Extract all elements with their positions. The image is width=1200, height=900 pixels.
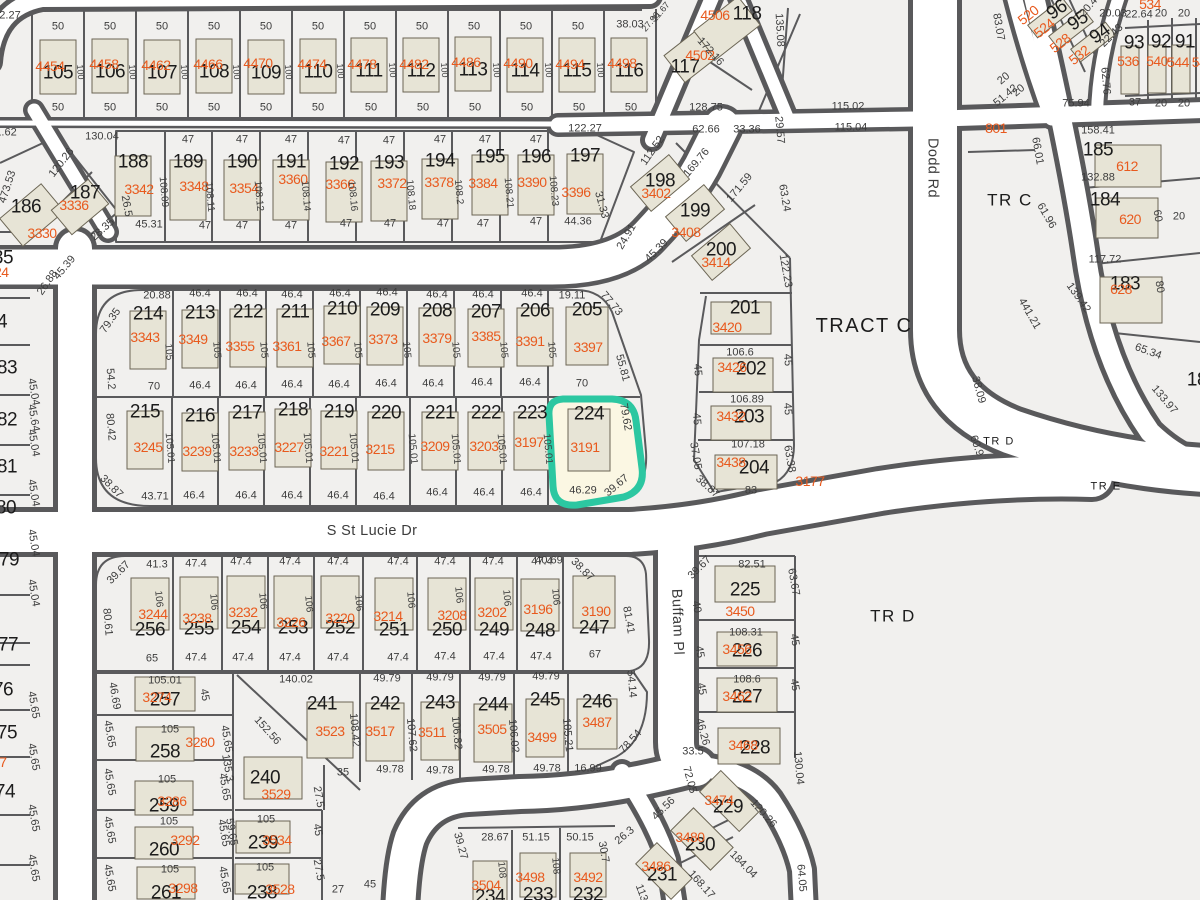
parcel-address-label: 3286 [157, 794, 186, 808]
dimension-label: 46.29 [569, 486, 597, 497]
parcel-address-label: 3298 [168, 881, 197, 895]
dimension-label: 50 [468, 22, 480, 33]
parcel-address-label: 3397 [573, 340, 602, 354]
parcel-number-label[interactable]: 240 [250, 769, 280, 788]
parcel-address-label: 3529 [261, 787, 290, 801]
parcel-number-label[interactable]: 212 [233, 303, 263, 322]
dimension-label: 135.08 [773, 13, 786, 47]
dimension-label: 20 [1178, 9, 1190, 20]
parcel-number-label[interactable]: 213 [185, 304, 215, 323]
dimension-label: 105.01 [209, 432, 222, 463]
parcel-number-label[interactable]: 233 [523, 886, 553, 900]
dimension-label: 47 [479, 135, 491, 146]
dimension-label: 50.15 [566, 833, 594, 844]
dimension-label: 105.01 [255, 432, 268, 463]
tract-label: TR C [987, 192, 1033, 209]
dimension-label: 106.6 [726, 348, 754, 359]
dimension-label: 50 [364, 22, 376, 33]
dimension-label: 50 [52, 103, 64, 114]
dimension-label: 45 [198, 688, 211, 702]
parcel-address-label: 4454 [35, 59, 64, 73]
dimension-label: 47.4 [482, 557, 503, 568]
dimension-label: 26.5 [119, 194, 134, 217]
parcel-number-label[interactable]: 214 [133, 305, 163, 324]
parcel-number-label[interactable]: 208 [422, 302, 452, 321]
parcel-number-label[interactable]: 77 [0, 636, 18, 655]
parcel-number-label[interactable]: 243 [425, 694, 455, 713]
parcel-address-label: 3227 [274, 440, 303, 454]
parcel-number-label[interactable]: 81 [0, 458, 17, 477]
dimension-label: 46.4 [329, 289, 350, 300]
parcel-number-label[interactable]: 82 [0, 411, 17, 430]
dimension-label: 105.01 [495, 433, 508, 464]
dimension-label: 100 [335, 63, 345, 79]
parcel-address-label: 3420 [712, 320, 741, 334]
parcel-number-label[interactable]: 195 [475, 148, 505, 167]
dimension-label: 20.88 [143, 291, 171, 302]
parcel-number-label[interactable]: 232 [573, 886, 603, 900]
dimension-label: 106 [207, 593, 218, 610]
dimension-label: 64.05 [794, 864, 807, 892]
dimension-label: 49.79 [478, 673, 506, 684]
dimension-label: 46.4 [472, 290, 493, 301]
tract-label: TRACT C [816, 316, 913, 336]
parcel-number-label[interactable]: 244 [478, 696, 508, 715]
dimension-label: 47.4 [434, 557, 455, 568]
parcel-number-label[interactable]: 190 [227, 153, 257, 172]
parcel-address-label: 4506 [700, 8, 729, 22]
dimension-label: 108.21 [502, 177, 515, 208]
parcel-number-label[interactable]: 247 [579, 619, 609, 638]
dimension-label: 108.18 [404, 179, 417, 210]
dimension-label: 115.02 [832, 102, 865, 113]
dimension-label: 46.4 [376, 288, 397, 299]
dimension-label: 140.02 [279, 675, 313, 686]
dimension-label: 30.7 [596, 840, 611, 863]
dimension-label: 51.15 [522, 833, 550, 844]
parcel-number-label[interactable]: 192 [329, 155, 359, 174]
dimension-label: 49.79 [426, 673, 454, 684]
dimension-label: 1.62 [0, 128, 17, 139]
parcel-number-label[interactable]: 225 [730, 581, 760, 600]
parcel-address-label: 3239 [182, 444, 211, 458]
parcel-number-label[interactable]: 197 [570, 147, 600, 166]
dimension-label: 46.4 [236, 289, 257, 300]
parcel-number-label[interactable]: 248 [525, 622, 555, 641]
dimension-label: 100 [179, 64, 189, 80]
dimension-label: 50 [520, 22, 532, 33]
parcel-address-label: 3367 [321, 334, 350, 348]
dimension-label: 47 [236, 135, 248, 146]
dimension-label: 46.4 [328, 380, 349, 391]
dimension-label: 105 [304, 341, 315, 358]
parcel-address-label: 3214 [373, 609, 402, 623]
dimension-label: 105.01 [301, 432, 314, 463]
dimension-label: 106 [256, 592, 267, 609]
dimension-label: 46.4 [235, 491, 256, 502]
parcel-address-label: 3379 [422, 331, 451, 345]
dimension-label: 100 [283, 64, 293, 80]
dimension-label: 106 [404, 591, 415, 608]
dimension-label: 49.78 [482, 765, 510, 776]
dimension-label: 47 [338, 136, 350, 147]
dimension-label: 108 [549, 857, 560, 874]
parcel-address-label: 3324 [0, 265, 9, 279]
parcel-address-label: 3391 [515, 334, 544, 348]
dimension-label: 45 [311, 823, 324, 837]
parcel-address-label: 801 [985, 121, 1007, 135]
dimension-label: 107.18 [731, 440, 765, 451]
dimension-label: 100 [75, 64, 85, 80]
dimension-label: 117.72 [1089, 255, 1122, 266]
dimension-label: 49.78 [376, 765, 404, 776]
parcel-number-label[interactable]: 209 [370, 301, 400, 320]
dimension-label: 105.01 [449, 433, 462, 464]
parcel-number-label[interactable]: 188 [118, 153, 148, 172]
dimension-label: 20 [1155, 99, 1167, 110]
dimension-label: 49.78 [533, 764, 561, 775]
dimension-label: 65 [146, 654, 158, 665]
parcel-address-label: 3414 [701, 255, 730, 269]
dimension-label: 75.94 [1062, 99, 1090, 110]
parcel-address-label: 3432 [716, 409, 745, 423]
parcel-address-label: 3292 [170, 833, 199, 847]
parcel-address-label: 536 [1117, 54, 1139, 68]
parcel-address-label: 4478 [347, 57, 376, 71]
parcel-address-label: 3226 [276, 615, 305, 629]
dimension-label: 33.36 [733, 125, 761, 136]
dimension-label: 108.12 [252, 180, 265, 211]
dimension-label: 40 [690, 600, 703, 614]
parcel-address-label: 3528 [265, 882, 294, 896]
dimension-label: 46.4 [426, 290, 447, 301]
parcel-address-label: 3245 [133, 440, 162, 454]
dimension-label: 105 [161, 865, 179, 876]
dimension-label: 27.5 [311, 785, 326, 808]
parcel-address-label: 3402 [641, 186, 670, 200]
dimension-label: 47.4 [530, 652, 551, 663]
parcel-number-label[interactable]: 219 [324, 403, 354, 422]
dimension-label: 108.16 [346, 180, 359, 211]
parcel-address-label: 628 [1110, 282, 1132, 296]
dimension-label: 49.78 [426, 766, 454, 777]
dimension-label: 106 [549, 588, 560, 605]
dimension-label: 27 [332, 885, 344, 896]
parcel-address-label: 3202 [477, 605, 506, 619]
parcel-address-label: 4458 [89, 57, 118, 71]
parcel-address-label: 3426 [717, 360, 746, 374]
parcel-number-label[interactable]: 193 [374, 154, 404, 173]
dimension-label: 46.4 [521, 289, 542, 300]
parcel-number-label[interactable]: 221 [425, 404, 455, 423]
parcel-number-label[interactable]: 245 [530, 691, 560, 710]
parcel-number-label[interactable]: 83 [0, 359, 17, 378]
dimension-label: 40.69 [535, 556, 563, 567]
parcel-number-label[interactable]: 224 [574, 405, 604, 424]
dimension-label: 50 [104, 22, 116, 33]
parcel-address-label: 3343 [130, 330, 159, 344]
dimension-label: 50 [469, 103, 481, 114]
parcel-address-label: 3492 [573, 870, 602, 884]
dimension-label: 105 [449, 341, 460, 358]
dimension-label: 45 [691, 363, 703, 376]
parcel-address-label: 54 [1192, 55, 1200, 69]
parcel-number-label[interactable]: 223 [517, 404, 547, 423]
parcel-number-label[interactable]: 250 [432, 621, 462, 640]
dimension-label: 108.31 [729, 628, 763, 639]
dimension-label: 47.4 [185, 653, 206, 664]
dimension-label: 50 [417, 103, 429, 114]
parcel-number-label[interactable]: 220 [371, 404, 401, 423]
dimension-label: 35 [337, 768, 349, 779]
parcel-number-label[interactable]: 184 [1090, 191, 1120, 210]
parcel-number-label[interactable]: 186 [11, 198, 41, 217]
dimension-label: 47 [199, 221, 211, 232]
dimension-label: 105 [545, 341, 556, 358]
dimension-label: 108.23 [547, 175, 560, 206]
dimension-label: 47.4 [327, 653, 348, 664]
dimension-label: 70 [576, 379, 588, 390]
parcel-address-label: 3215 [365, 442, 394, 456]
dimension-label: 47.4 [185, 559, 206, 570]
parcel-address-label: 3190 [581, 604, 610, 618]
dimension-label: 50 [625, 103, 637, 114]
dimension-label: 100 [439, 62, 449, 78]
parcel-number-label[interactable]: 256 [135, 621, 165, 640]
dimension-label: 130.04 [85, 132, 119, 143]
dimension-label: 50 [260, 103, 272, 114]
dimension-label: 67 [589, 650, 601, 661]
dimension-label: 46.4 [183, 491, 204, 502]
dimension-label: 50 [208, 103, 220, 114]
dimension-label: 47.4 [434, 652, 455, 663]
parcel-address-label: 3203 [469, 439, 498, 453]
parcel-address-label: 3244 [138, 607, 167, 621]
dimension-label: 46.4 [426, 488, 447, 499]
parcel-address-label: 3474 [704, 793, 733, 807]
dimension-label: 46.4 [189, 381, 210, 392]
parcel-address-label: 4490 [503, 56, 532, 70]
dimension-label: 47.4 [279, 653, 300, 664]
parcel-number-label[interactable]: 241 [307, 695, 337, 714]
parcel-address-label: 3504 [471, 878, 500, 892]
dimension-label: 20 [1178, 99, 1190, 110]
parcel-address-label: 3274 [142, 690, 171, 704]
dimension-label: 46.4 [473, 488, 494, 499]
dimension-label: 16.99 [574, 764, 602, 775]
parcel-address-label: 3385 [471, 329, 500, 343]
dimension-label: 45 [788, 678, 801, 692]
parcel-number-label[interactable]: 222 [471, 404, 501, 423]
parcel-address-label: 3408 [671, 225, 700, 239]
parcel-address-label: 3498 [515, 870, 544, 884]
parcel-number-label[interactable]: 242 [370, 695, 400, 714]
dimension-label: 45 [364, 880, 376, 891]
dimension-label: 132.88 [1081, 173, 1115, 184]
dimension-label: 20 [1155, 9, 1167, 20]
parcel-number-label[interactable]: 205 [572, 301, 602, 320]
dimension-label: 50 [208, 22, 220, 33]
dimension-label: 47 [530, 135, 542, 146]
street-name-label: Buffam Pl [669, 589, 686, 656]
dimension-label: 2.27 [0, 11, 21, 22]
parcel-number-label[interactable]: 189 [173, 153, 203, 172]
parcel-address-label: 4486 [451, 55, 480, 69]
dimension-label: 50 [416, 22, 428, 33]
dimension-label: 108.14 [299, 180, 312, 211]
parcel-address-label: 3355 [225, 339, 254, 353]
dimension-label: 105 [160, 817, 178, 828]
dimension-label: 70 [148, 382, 160, 393]
dimension-label: 33.5 [682, 747, 703, 758]
parcel-number-label[interactable]: 75 [0, 724, 17, 743]
parcel-address-label: 4494 [555, 57, 584, 71]
dimension-label: 106.82 [449, 716, 463, 750]
dimension-label: 45 [788, 633, 801, 647]
dimension-label: 105 [161, 725, 179, 736]
dimension-label: 108.2 [452, 179, 464, 205]
dimension-label: 115.04 [835, 123, 868, 134]
dimension-label: 54.2 [104, 368, 117, 390]
dimension-label: 27.5 [311, 858, 326, 881]
dimension-label: 46.4 [375, 379, 396, 390]
dimension-label: 50 [156, 103, 168, 114]
dimension-label: 47 [383, 136, 395, 147]
parcel-number-label[interactable]: 196 [521, 148, 551, 167]
dimension-label: 50 [260, 22, 272, 33]
dimension-label: 105.01 [163, 432, 176, 463]
parcel-address-label: 4470 [243, 56, 272, 70]
dimension-label: 22.64 [1125, 10, 1153, 21]
parcel-address-label: 3197 [514, 435, 543, 449]
dimension-label: 47.4 [230, 557, 251, 568]
dimension-label: 106 [500, 589, 511, 606]
dimension-label: 100 [543, 62, 553, 78]
tract-label: TR D [870, 608, 916, 625]
parcel-address-label: 3499 [527, 730, 556, 744]
parcel-number-label[interactable]: 118 [733, 5, 762, 24]
parcel-number-label[interactable]: 249 [479, 621, 509, 640]
parcel-address-label: 3177 [795, 474, 824, 488]
parcel-number-label[interactable]: 4 [0, 313, 7, 332]
dimension-label: 50 [104, 103, 116, 114]
dimension-label: 80 [1153, 280, 1166, 294]
parcel-address-label: 3233 [229, 444, 258, 458]
dimension-label: 45 [781, 402, 793, 415]
dimension-label: 100 [595, 62, 605, 78]
parcel-number-label[interactable]: 207 [471, 303, 501, 322]
parcel-address-label: 3480 [675, 830, 704, 844]
dimension-label: 28.67 [481, 833, 509, 844]
dimension-label: 46.4 [281, 491, 302, 502]
dimension-label: 50 [312, 22, 324, 33]
parcel-number-label[interactable]: 80 [0, 499, 16, 518]
dimension-label: 105.01 [347, 432, 360, 463]
tract-label: TR E [1090, 482, 1121, 493]
dimension-label: 108.6 [733, 675, 761, 686]
dimension-label: 47 [530, 217, 542, 228]
parcel-address-label: 3208 [437, 608, 466, 622]
dimension-label: 106 [302, 595, 313, 612]
parcel-number-label[interactable]: 206 [520, 302, 550, 321]
dimension-label: 47 [182, 135, 194, 146]
parcel-number-label[interactable]: 18 [1187, 371, 1200, 390]
dimension-label: 46.4 [327, 491, 348, 502]
dimension-label: 106.02 [506, 719, 520, 753]
parcel-number-label[interactable]: 217 [232, 404, 262, 423]
parcel-number-label[interactable]: 246 [582, 693, 612, 712]
dimension-label: 45 [690, 412, 702, 425]
parcel-address-label: 3373 [368, 332, 397, 346]
dimension-label: 50 [365, 103, 377, 114]
parcel-number-label[interactable]: 93 [1124, 34, 1144, 53]
dimension-label: 105.01 [148, 676, 182, 687]
parcel-number-label[interactable]: 176 [0, 681, 13, 700]
parcel-address-label: 3384 [468, 176, 497, 190]
dimension-label: 106 [452, 586, 463, 603]
dimension-label: 47 [340, 219, 352, 230]
parcel-address-label: 3220 [325, 611, 354, 625]
street-name-label: S St Lucie Dr [327, 524, 418, 539]
dimension-label: 46.4 [281, 290, 302, 301]
parcel-address-label: 544 [1167, 55, 1189, 69]
parcel-number-label[interactable]: 254 [231, 619, 261, 638]
parcel-address-label: 3462 [722, 689, 751, 703]
parcel-number-label[interactable]: 74 [0, 783, 15, 802]
dimension-label: 107.62 [404, 718, 418, 752]
dimension-label: 105 [162, 343, 173, 360]
dimension-label: 100 [231, 64, 241, 80]
parcel-address-label: 3330 [27, 226, 56, 240]
parcel-number-label[interactable]: 191 [276, 153, 306, 172]
dimension-label: 19.11 [559, 291, 586, 302]
parcel-address-label: 3534 [262, 833, 291, 847]
dimension-label: 47.4 [387, 557, 408, 568]
dimension-label: 50 [573, 103, 585, 114]
parcel-address-label: 3390 [517, 175, 546, 189]
dimension-label: 47.4 [279, 557, 300, 568]
parcel-address-label: 3191 [570, 440, 599, 454]
dimension-label: 105.01 [406, 433, 419, 464]
parcel-address-label: 3221 [319, 444, 348, 458]
parcel-number-label[interactable]: 199 [680, 202, 710, 221]
dimension-label: 20.03 [1099, 9, 1127, 20]
parcel-address-label: 3287 [0, 755, 7, 769]
parcel-map[interactable]: 1041051061071081091101111121131141151161… [0, 0, 1200, 900]
parcel-address-label: 3450 [725, 604, 754, 618]
parcel-number-label[interactable]: 92 [1151, 33, 1171, 52]
parcel-address-label: 4462 [141, 58, 170, 72]
parcel-number-label[interactable]: 185 [1083, 141, 1113, 160]
parcel-number-label[interactable]: 91 [1175, 33, 1195, 52]
parcel-number-label[interactable]: 194 [425, 152, 455, 171]
parcel-number-label[interactable]: 218 [278, 401, 308, 420]
dimension-label: 60 [1151, 209, 1164, 223]
parcel-number-label[interactable]: 210 [327, 300, 357, 319]
parcel-number-label[interactable]: 258 [150, 743, 180, 762]
parcel-number-label[interactable]: 215 [130, 403, 160, 422]
dimension-label: 46.4 [471, 378, 492, 389]
parcel-address-label: 4498 [607, 56, 636, 70]
parcel-number-label[interactable]: 216 [185, 407, 215, 426]
dimension-label: 105 [210, 341, 221, 358]
dimension-label: 83 [745, 486, 757, 497]
dimension-label: 122.27 [568, 124, 602, 135]
parcel-number-label[interactable]: 79 [0, 551, 19, 570]
parcel-number-label[interactable]: 211 [281, 303, 310, 322]
dimension-label: 49.79 [373, 674, 401, 685]
parcel-number-label[interactable]: 201 [730, 299, 760, 318]
